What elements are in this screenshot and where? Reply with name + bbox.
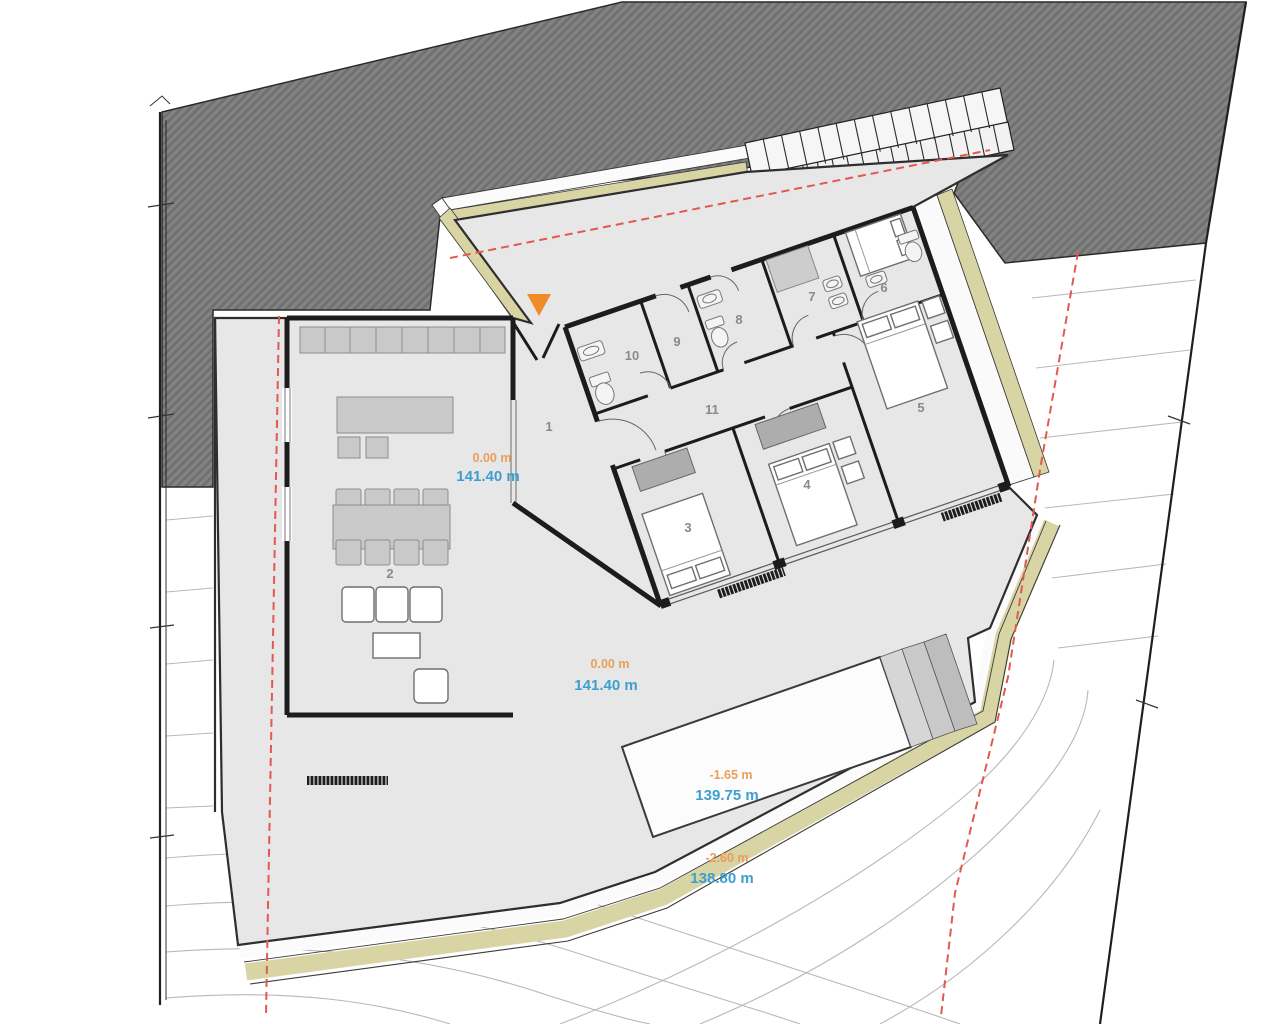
kitchen-unit-1 xyxy=(338,437,360,458)
kitchen-island xyxy=(337,397,453,433)
svg-text:-1.65 m: -1.65 m xyxy=(709,768,752,782)
room-label-1: 1 xyxy=(545,419,552,434)
svg-text:-2.60 m: -2.60 m xyxy=(705,851,748,865)
room-label-4: 4 xyxy=(803,477,811,492)
door-sill-terrace xyxy=(307,776,388,785)
room-label-5: 5 xyxy=(917,400,924,415)
plan-canvas: 12345678910111213141516171819 xyxy=(0,0,1280,1024)
svg-text:141.40 m: 141.40 m xyxy=(456,468,519,485)
room-label-2: 2 xyxy=(386,566,393,581)
window-west-2 xyxy=(282,487,292,541)
room-label-6: 6 xyxy=(880,280,887,295)
room-label-9: 9 xyxy=(673,334,680,349)
room-label-11: 11 xyxy=(705,402,719,417)
svg-text:0.00 m: 0.00 m xyxy=(591,657,630,671)
room-label-3: 3 xyxy=(684,520,691,535)
svg-text:0.00 m: 0.00 m xyxy=(473,451,512,465)
svg-text:138.80 m: 138.80 m xyxy=(690,870,753,887)
svg-text:141.40 m: 141.40 m xyxy=(574,677,637,694)
kitchen-cabinets xyxy=(300,327,505,353)
kitchen-unit-2 xyxy=(366,437,388,458)
site-plan-drawing: 12345678910111213141516171819 xyxy=(0,0,1280,1024)
room-label-10: 10 xyxy=(625,348,639,363)
room-label-7: 7 xyxy=(808,289,815,304)
window-west-1 xyxy=(282,388,292,442)
room-label-8: 8 xyxy=(735,312,742,327)
svg-text:139.75 m: 139.75 m xyxy=(695,787,758,804)
